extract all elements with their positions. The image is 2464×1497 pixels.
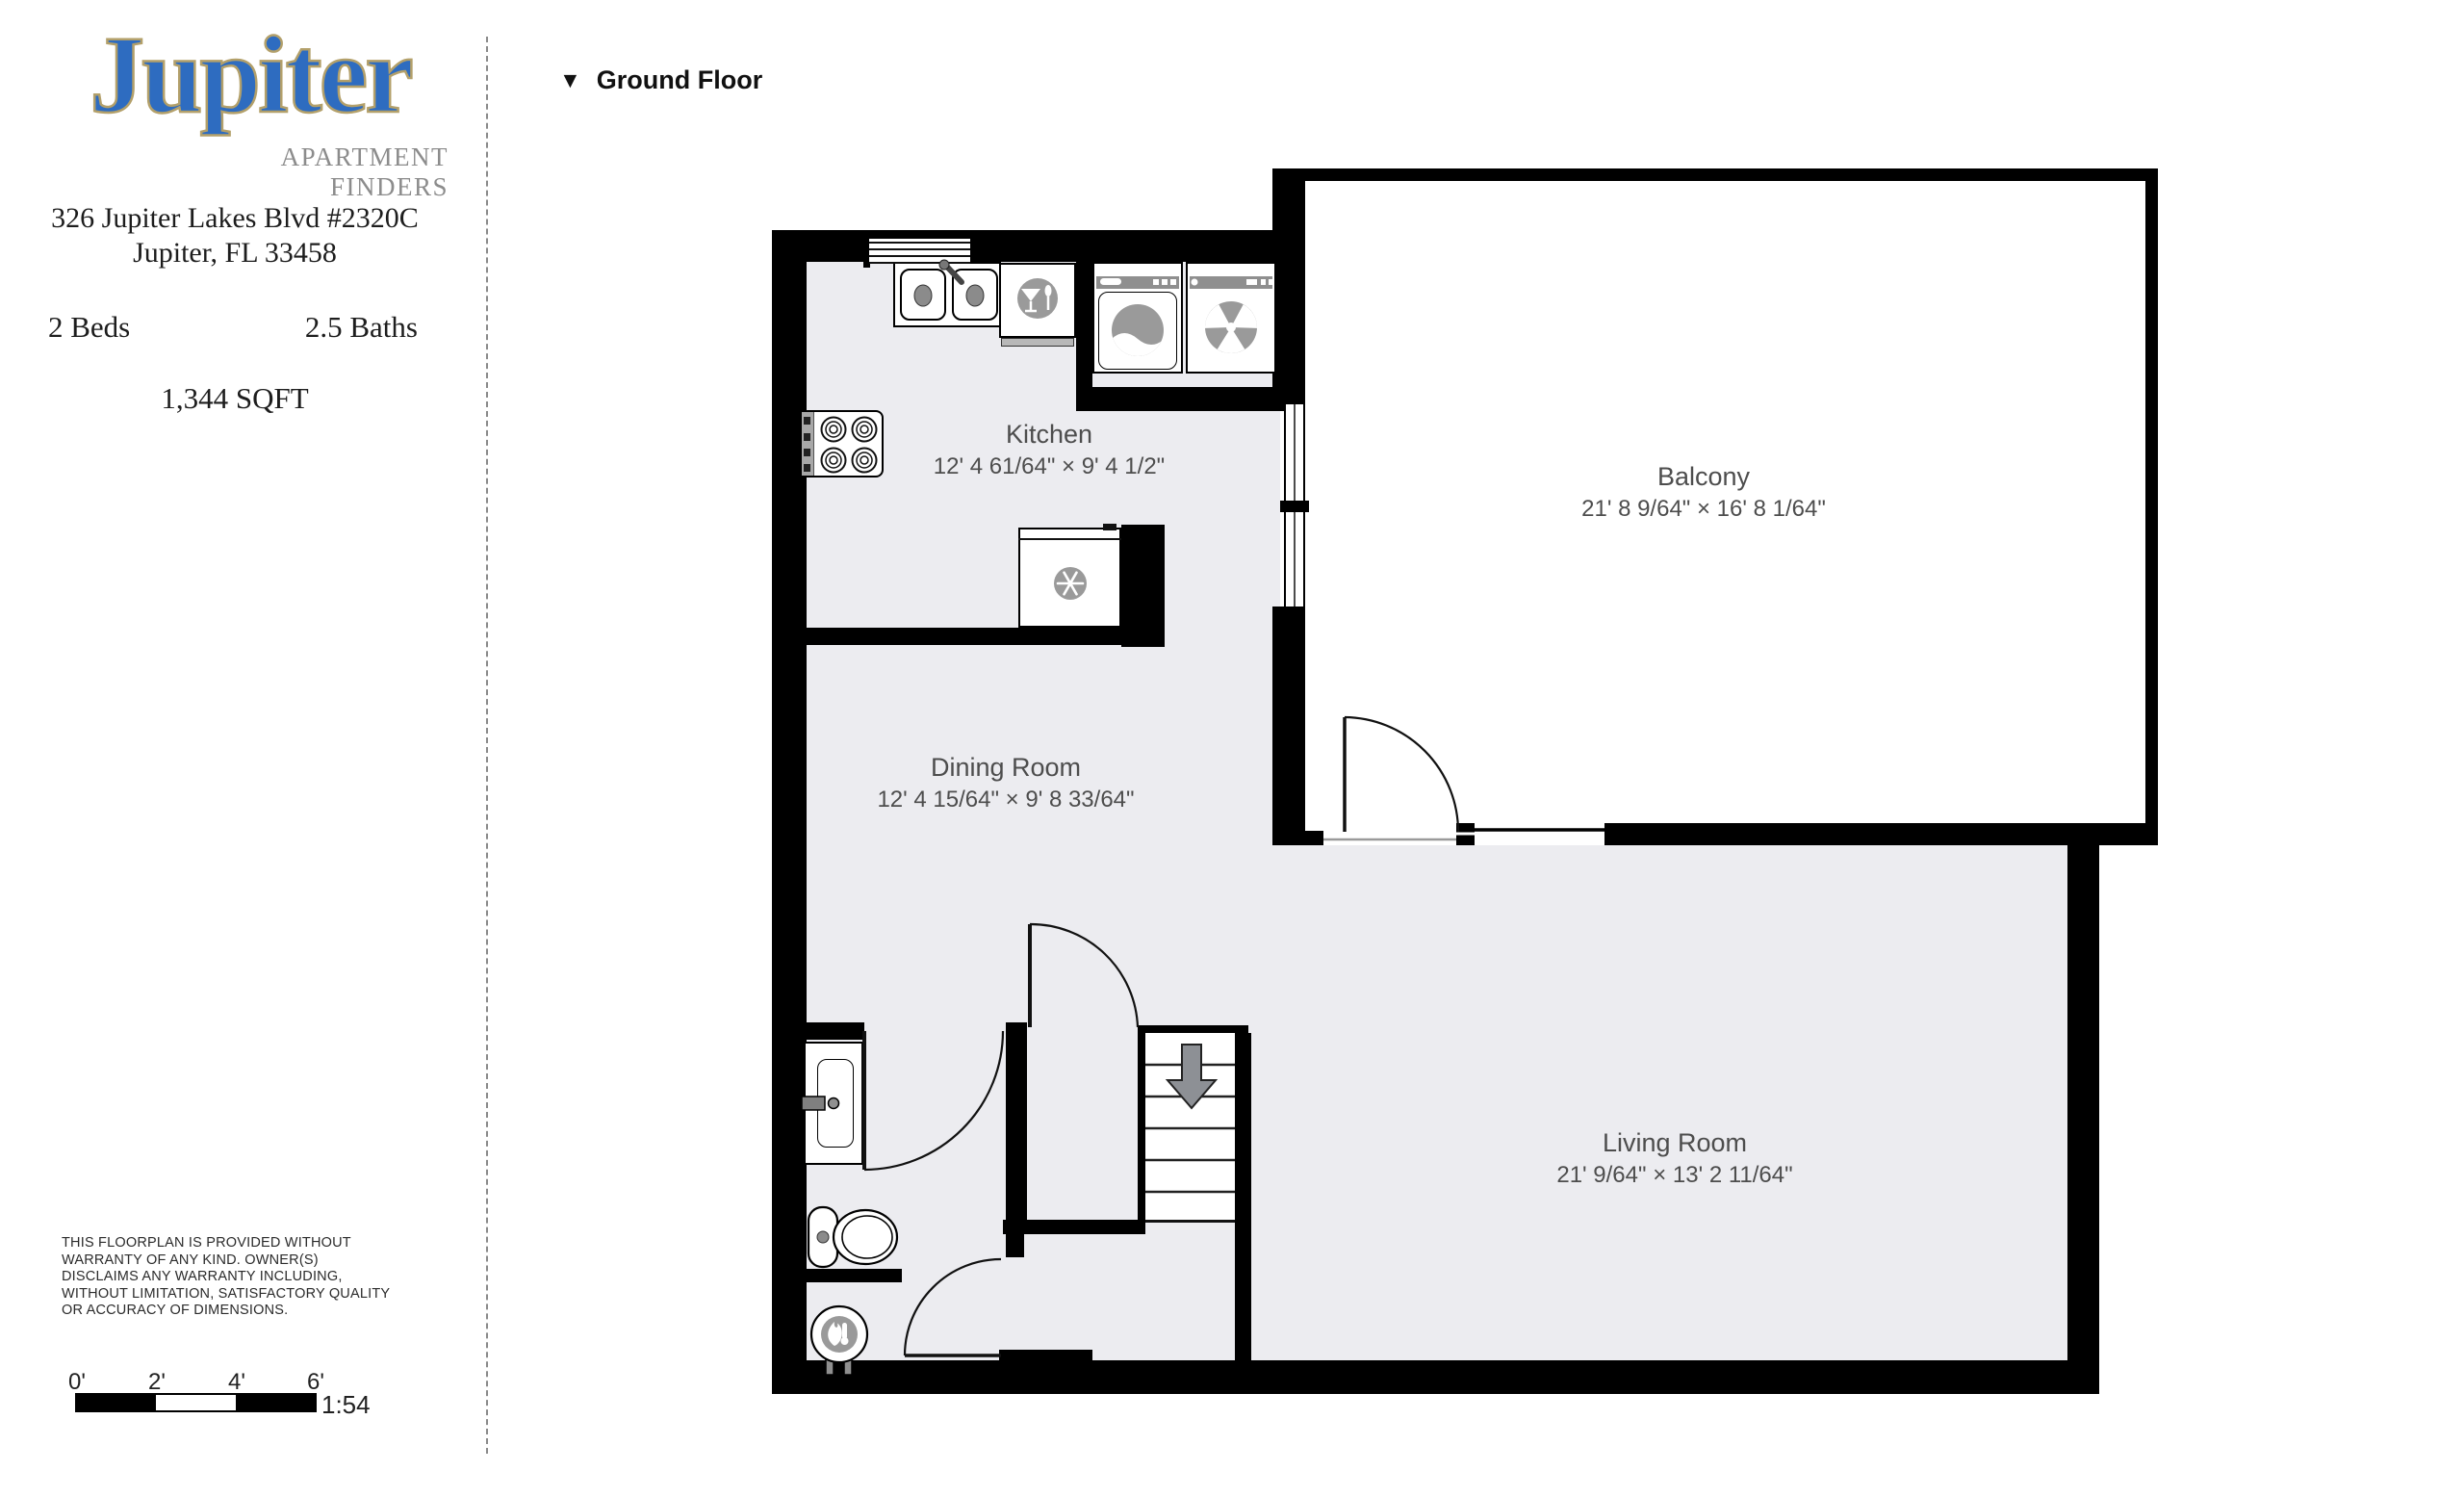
wall bbox=[772, 1360, 2099, 1394]
wall bbox=[1272, 607, 1305, 845]
wall bbox=[1003, 1220, 1145, 1234]
floor-selector[interactable]: ▼ Ground Floor bbox=[559, 65, 762, 95]
washer-controls bbox=[1096, 276, 1179, 289]
room-name: Balcony bbox=[1453, 460, 1954, 494]
room-name: Kitchen bbox=[799, 418, 1299, 452]
room-dimensions: 12' 4 61/64" × 9' 4 1/2" bbox=[799, 452, 1299, 481]
kitchen-window bbox=[869, 239, 970, 264]
dishwasher-base bbox=[1001, 338, 1074, 347]
floorplan-page: Jupiter APARTMENT FINDERS 326 Jupiter La… bbox=[0, 0, 2464, 1497]
room-dimensions: 12' 4 15/64" × 9' 8 33/64" bbox=[756, 785, 1256, 814]
wall bbox=[1295, 168, 2158, 181]
wall bbox=[1076, 387, 1305, 411]
room-dimensions: 21' 8 9/64" × 16' 8 1/64" bbox=[1453, 494, 1954, 524]
scale-bar-segment bbox=[236, 1395, 315, 1410]
wall bbox=[999, 1350, 1092, 1361]
beds-count: 2 Beds bbox=[48, 310, 130, 345]
staircase bbox=[1145, 1033, 1235, 1223]
scale-bar-segment bbox=[156, 1395, 235, 1410]
room-name: Living Room bbox=[1424, 1126, 1925, 1160]
agency-tagline: APARTMENT FINDERS bbox=[171, 142, 449, 202]
sqft-value: 1,344 SQFT bbox=[27, 381, 443, 416]
disclaimer-text: THIS FLOORPLAN IS PROVIDED WITHOUT WARRA… bbox=[62, 1235, 427, 1320]
scale-tick-4: 4' bbox=[228, 1369, 245, 1396]
floor-selector-label: Ground Floor bbox=[597, 65, 762, 95]
sink-bowl bbox=[952, 269, 998, 321]
room-label-kitchen: Kitchen 12' 4 61/64" × 9' 4 1/2" bbox=[799, 418, 1299, 481]
wall bbox=[1138, 1025, 1145, 1234]
scale-bar bbox=[75, 1393, 317, 1412]
address-line1: 326 Jupiter Lakes Blvd #2320C bbox=[27, 202, 443, 235]
room-dimensions: 21' 9/64" × 13' 2 11/64" bbox=[1424, 1160, 1925, 1190]
wall bbox=[1604, 823, 1620, 845]
wall bbox=[1272, 831, 1323, 845]
scale-ratio: 1:54 bbox=[321, 1390, 371, 1420]
window-mullion bbox=[1280, 501, 1309, 512]
address-line2: Jupiter, FL 33458 bbox=[27, 237, 443, 270]
wall bbox=[807, 1022, 864, 1040]
living-room-floor bbox=[1280, 845, 2067, 1360]
chevron-down-icon: ▼ bbox=[559, 67, 581, 93]
wall bbox=[1006, 1234, 1024, 1257]
wall bbox=[772, 230, 1305, 262]
wall bbox=[1620, 823, 2158, 845]
beds-baths-row: 2 Beds 2.5 Baths bbox=[48, 310, 418, 345]
wall bbox=[1235, 1033, 1251, 1394]
wall bbox=[2067, 845, 2099, 1394]
scale-tick-0: 0' bbox=[68, 1369, 86, 1396]
wall bbox=[1006, 1022, 1027, 1234]
dryer-controls bbox=[1190, 276, 1272, 289]
vanity-basin bbox=[817, 1059, 854, 1148]
wall bbox=[1121, 525, 1165, 647]
baths-count: 2.5 Baths bbox=[305, 310, 418, 345]
sink-bowl bbox=[900, 269, 946, 321]
wall bbox=[1272, 168, 1305, 404]
room-name: Dining Room bbox=[756, 751, 1256, 785]
door-jamb bbox=[1456, 823, 1475, 845]
scale-bar-segment bbox=[77, 1395, 156, 1410]
washer-door bbox=[1098, 292, 1177, 370]
scale-tick-2: 2' bbox=[148, 1369, 166, 1396]
wall bbox=[799, 628, 1165, 645]
agency-logo: Jupiter bbox=[48, 17, 452, 133]
wall bbox=[1076, 230, 1092, 399]
room-label-dining: Dining Room 12' 4 15/64" × 9' 8 33/64" bbox=[756, 751, 1256, 814]
panel-divider bbox=[486, 37, 488, 1454]
room-label-balcony: Balcony 21' 8 9/64" × 16' 8 1/64" bbox=[1453, 460, 1954, 524]
balcony-window bbox=[1284, 512, 1305, 607]
fridge bbox=[1018, 528, 1121, 628]
room-label-living: Living Room 21' 9/64" × 13' 2 11/64" bbox=[1424, 1126, 1925, 1190]
wall bbox=[2145, 168, 2158, 845]
dishwasher bbox=[999, 263, 1076, 338]
wall bbox=[1138, 1025, 1235, 1033]
wall bbox=[801, 1269, 902, 1282]
